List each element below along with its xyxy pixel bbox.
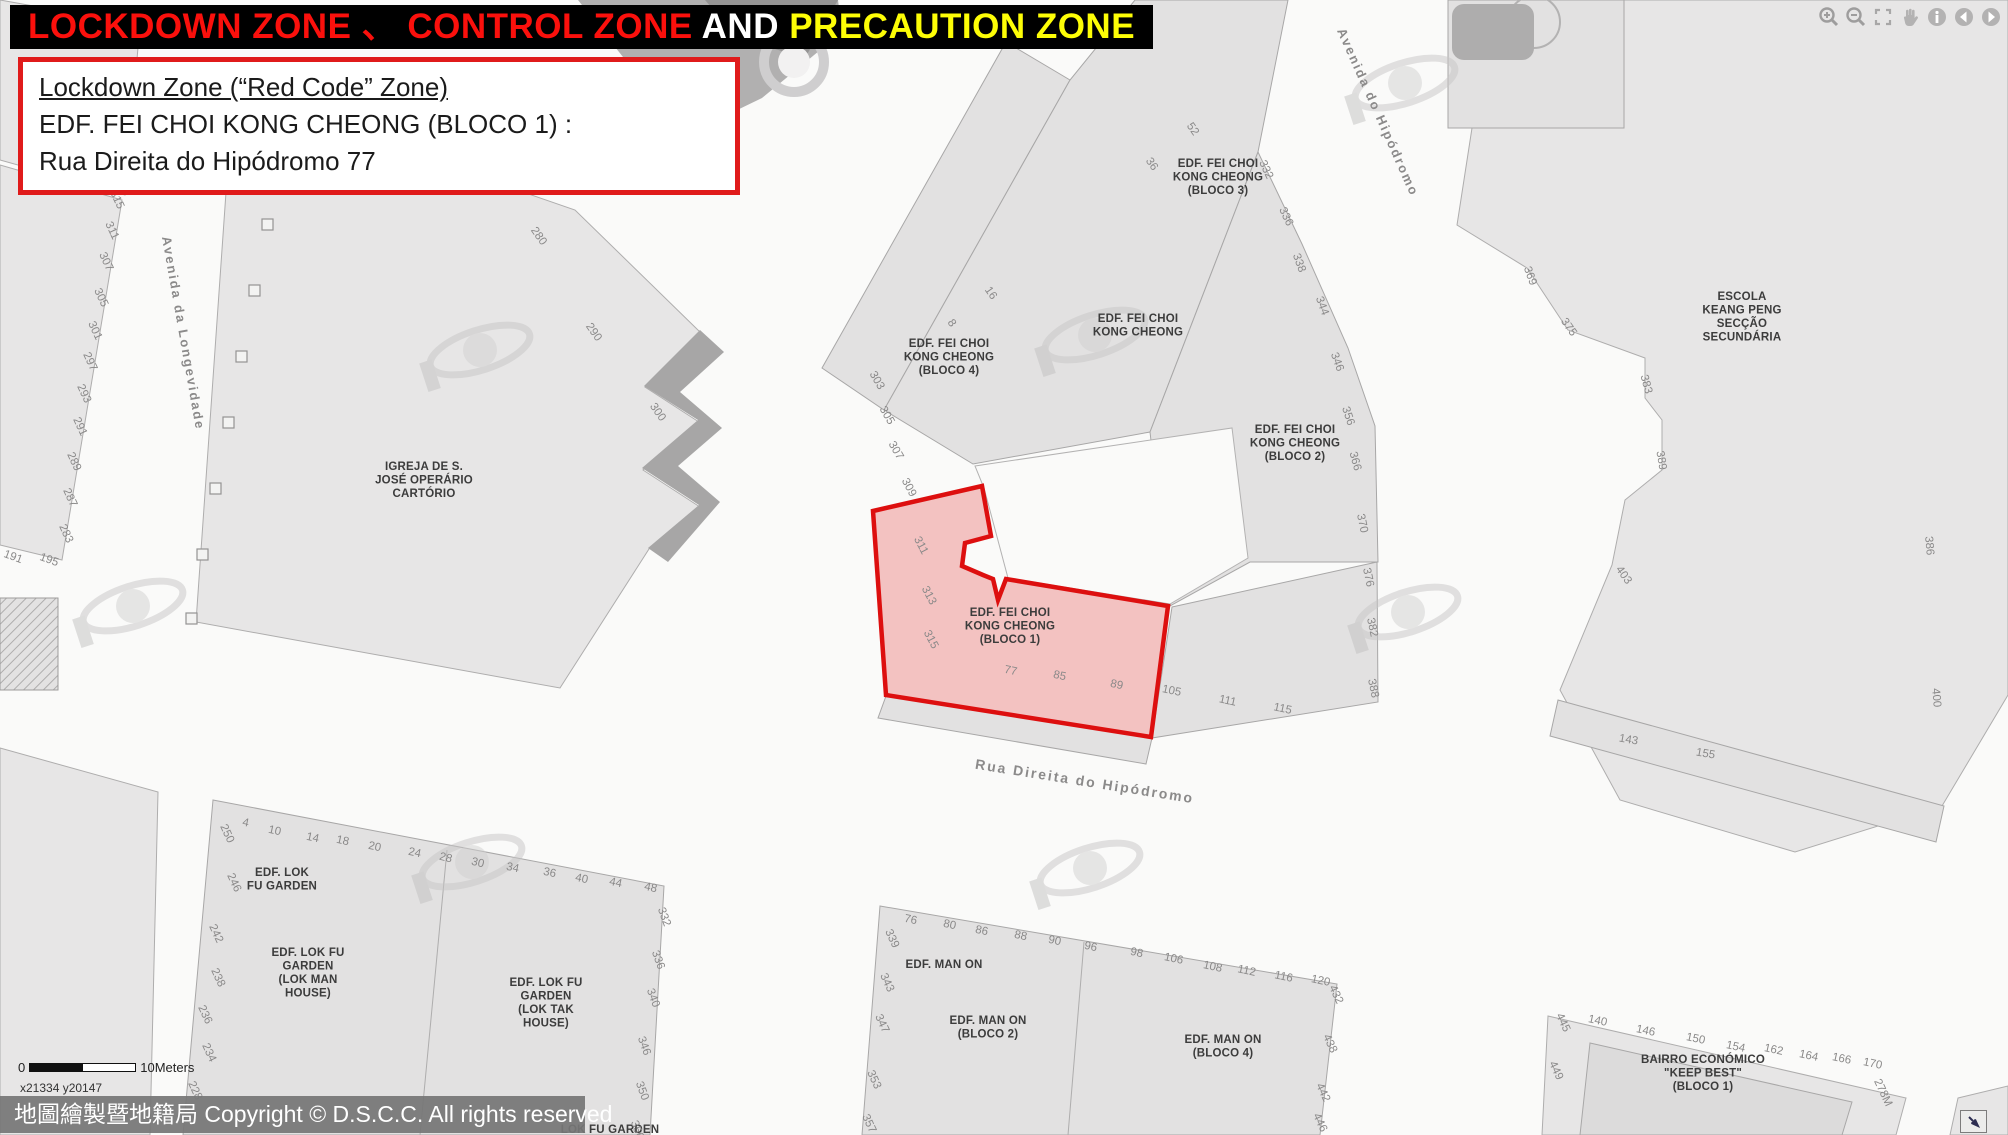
hatched-area — [0, 598, 58, 690]
house-number: 386 — [1922, 536, 1936, 556]
scale-bar-graphic — [29, 1063, 136, 1072]
title-lockdown-control: LOCKDOWN ZONE 、 CONTROL ZONE — [28, 7, 693, 46]
info-building-line: EDF. FEI CHOI KONG CHEONG (BLOCO 1) : — [39, 106, 719, 143]
zoom-in-icon[interactable] — [1818, 6, 1840, 28]
building-label: EDF. MAN ON — [906, 959, 983, 971]
lockdown-info-box: Lockdown Zone (“Red Code” Zone) EDF. FEI… — [18, 57, 740, 195]
overview-toggle-button[interactable] — [1960, 1110, 1987, 1133]
title-precaution: PRECAUTION ZONE — [789, 7, 1135, 46]
court-key-area — [1452, 4, 1534, 60]
title-and: AND — [693, 7, 789, 46]
pan-hand-icon[interactable] — [1899, 6, 1921, 28]
building-left-bottom — [0, 748, 158, 1135]
pillar-marker — [210, 483, 221, 494]
map-viewport: Avenida da LongevidadeAvenida do Hipódro… — [0, 0, 2008, 1135]
info-address-line: Rua Direita do Hipódromo 77 — [39, 143, 719, 180]
copyright-bar: 地圖繪製暨地籍局 Copyright © D.S.C.C. All rights… — [0, 1096, 585, 1133]
scale-zero-label: 0 — [18, 1060, 25, 1075]
info-zone-heading: Lockdown Zone (“Red Code” Zone) — [39, 69, 719, 106]
previous-extent-icon[interactable] — [1953, 6, 1975, 28]
pillar-marker — [186, 613, 197, 624]
full-extent-icon[interactable] — [1872, 6, 1894, 28]
building-label: EDF. MAN ON(BLOCO 4) — [1185, 1034, 1262, 1060]
pillar-marker — [236, 351, 247, 362]
title-banner: LOCKDOWN ZONE 、 CONTROL ZONE AND PRECAUT… — [10, 5, 1153, 49]
pillar-marker — [223, 417, 234, 428]
house-number: 400 — [1929, 688, 1943, 708]
identify-info-icon[interactable] — [1926, 6, 1948, 28]
roundabout-center — [778, 46, 810, 78]
pillar-marker — [249, 285, 260, 296]
zoom-out-icon[interactable] — [1845, 6, 1867, 28]
next-extent-icon[interactable] — [1980, 6, 2002, 28]
building-label: EDF. MAN ON(BLOCO 2) — [950, 1015, 1027, 1041]
building-label: EDF. LOKFU GARDEN — [247, 867, 317, 893]
cursor-coordinates: x21334 y20147 — [20, 1081, 102, 1095]
building-label: EDF. FEI CHOIKONG CHEONG — [1093, 313, 1183, 339]
pillar-marker — [262, 219, 273, 230]
pillar-marker — [197, 549, 208, 560]
scale-bar: 0 10Meters — [18, 1060, 194, 1075]
scale-distance-label: 10Meters — [140, 1060, 194, 1075]
map-toolbar — [1818, 6, 2002, 28]
